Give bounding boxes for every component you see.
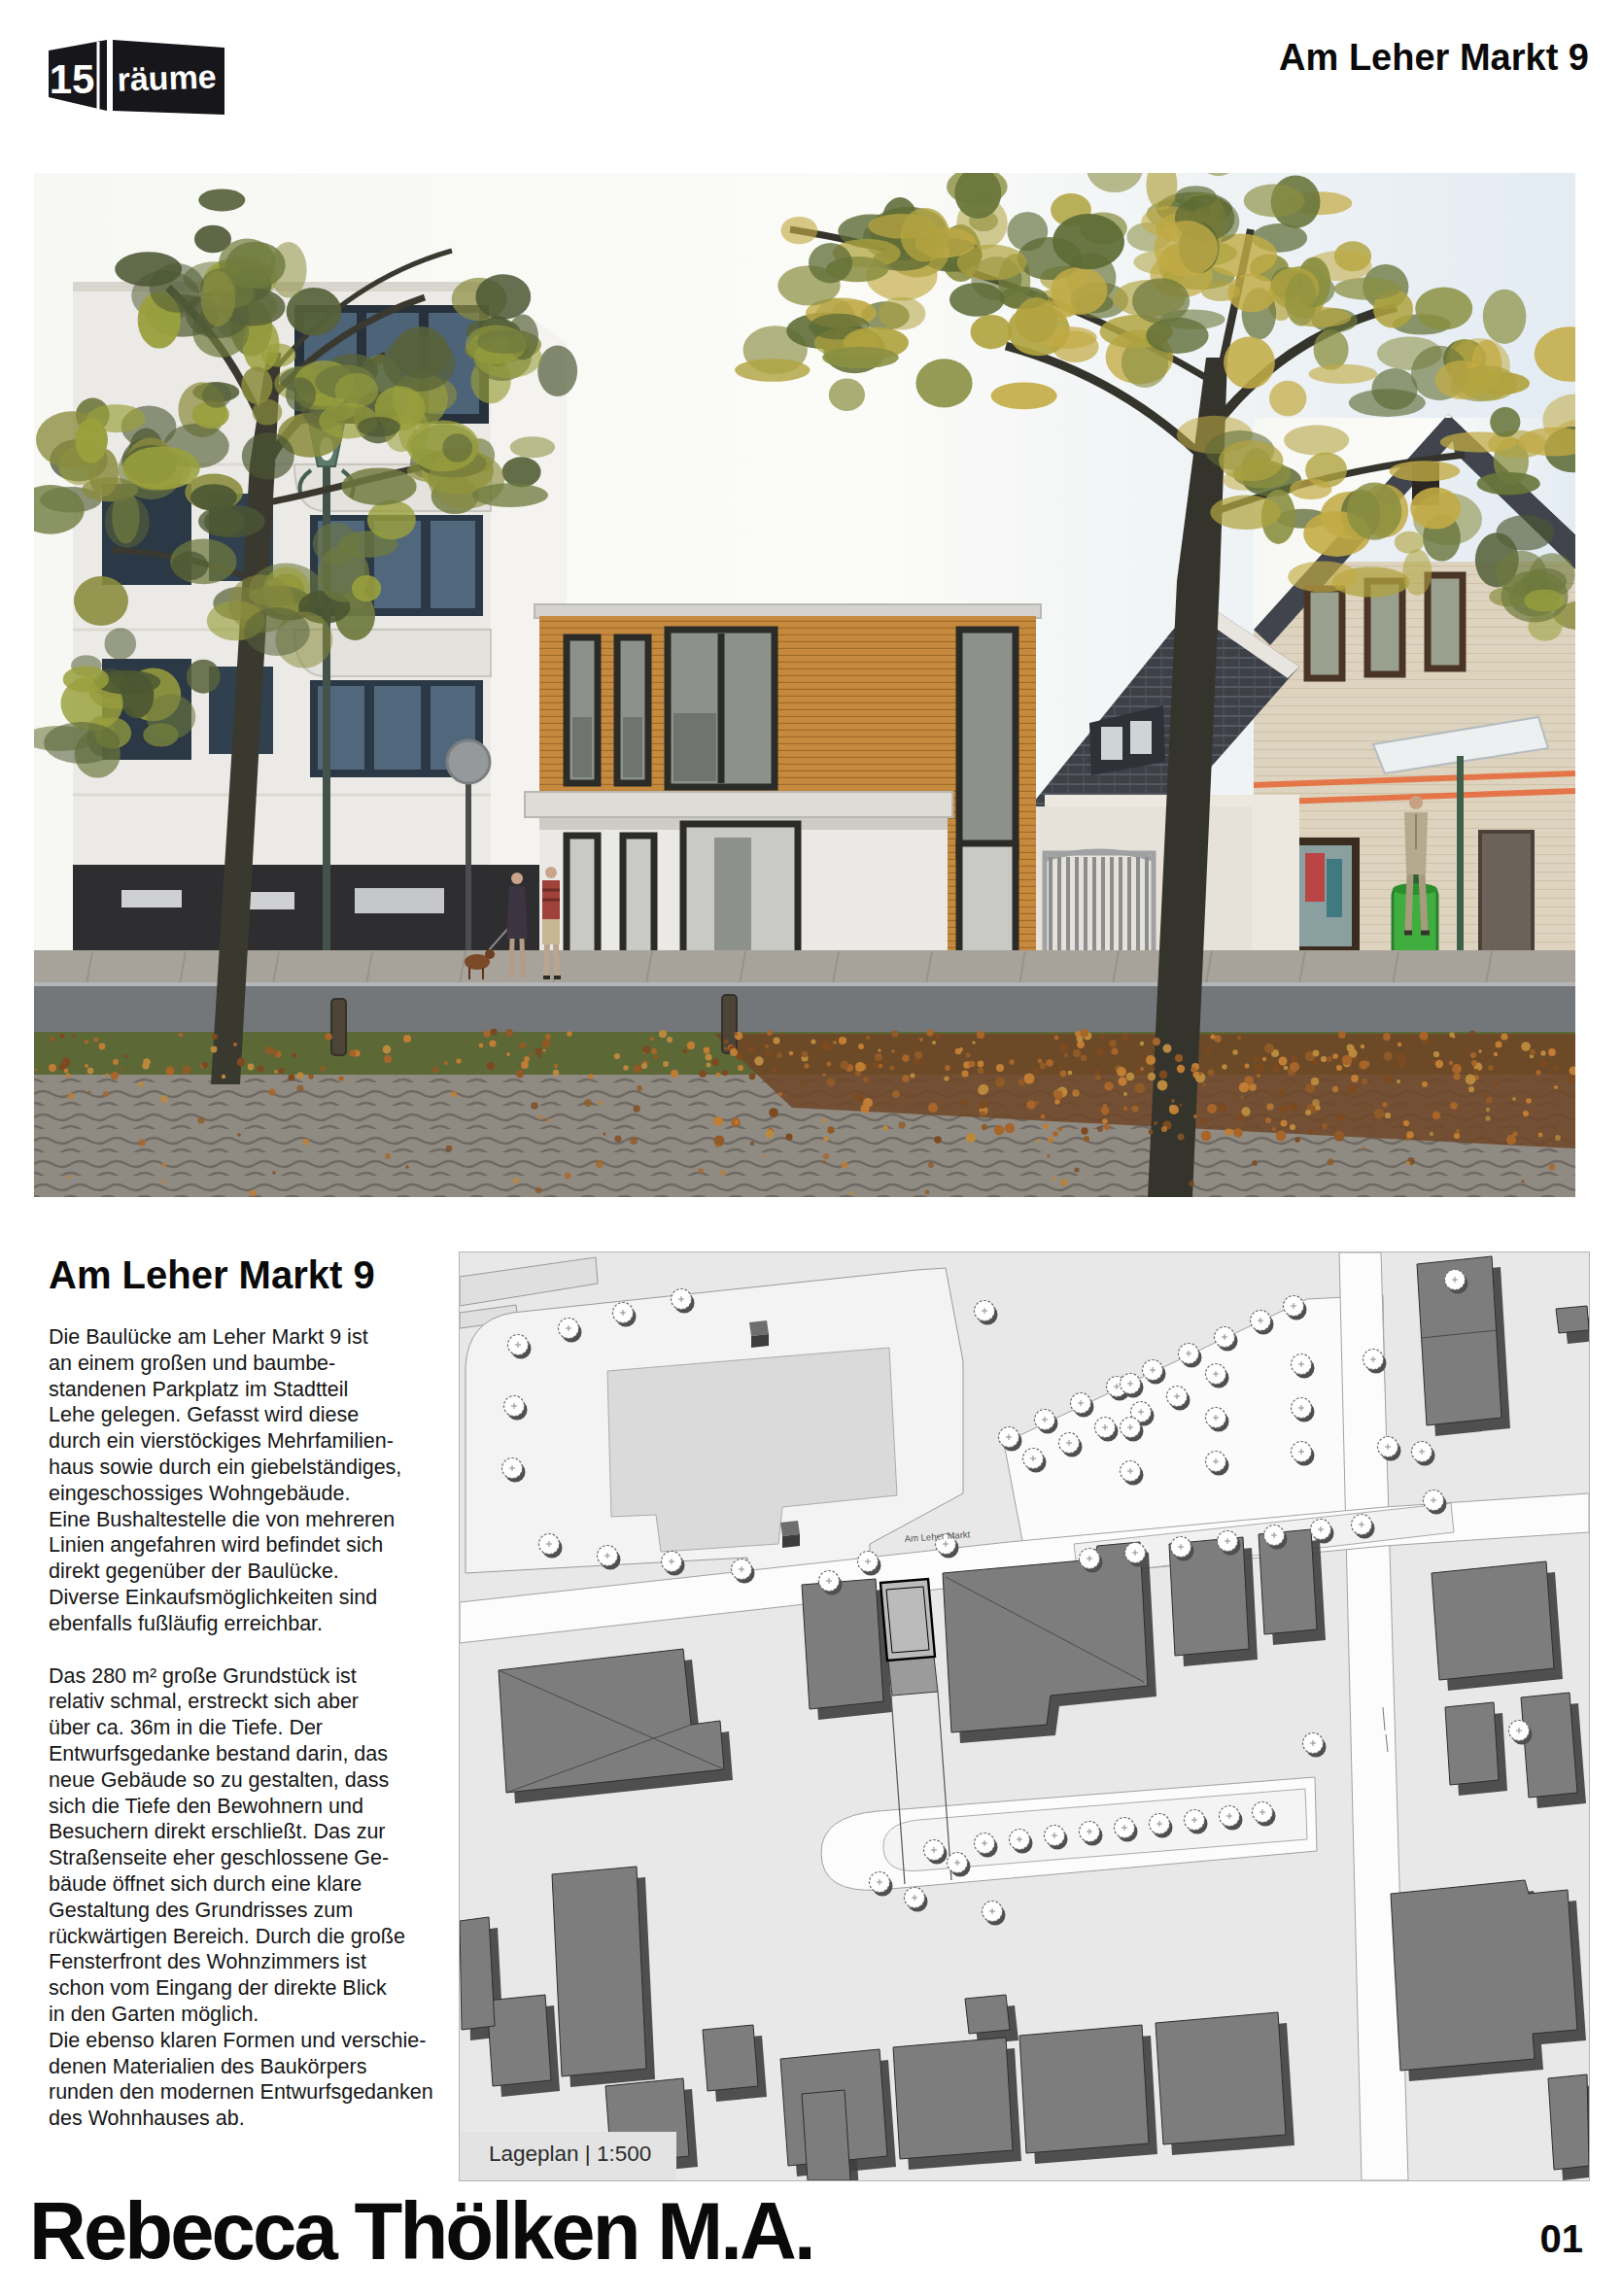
new-building [525,604,1041,981]
street-photo-illustration [34,173,1575,1197]
logo-graphic: 15 räume [47,35,226,117]
article-paragraph-2: Das 280 m² große Grundstück ist relativ … [49,1663,457,2132]
siteplan-caption: Lageplan | 1:500 [460,2132,676,2180]
logo-word: räume [117,57,217,98]
page-title: Am Leher Markt 9 [909,37,1589,79]
portfolio-page: 15 räume Am Leher Markt 9 [0,0,1622,2296]
raeume15-logo: 15 räume [47,35,226,117]
courtyard-wall [1033,806,1252,952]
article: Am Leher Markt 9 Die Baulücke am Leher M… [49,1253,457,2158]
project-photo [34,173,1575,1197]
page-number: 01 [1540,2217,1584,2261]
author-name: Rebecca Thölken M.A. [29,2184,813,2279]
ground [34,950,1575,1197]
article-heading: Am Leher Markt 9 [49,1253,457,1297]
siteplan: Am Leher Markt Lageplan | 1:500 [459,1251,1590,2181]
siteplan-drawing: Am Leher Markt [460,1252,1589,2180]
article-paragraph-1: Die Baulücke am Leher Markt 9 ist an ein… [49,1324,457,1637]
logo-number: 15 [50,56,95,102]
